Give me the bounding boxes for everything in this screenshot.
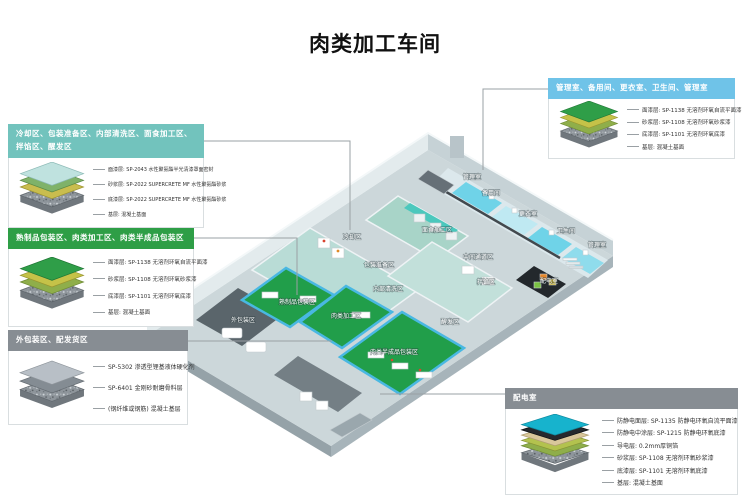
spec-line: 砂浆层: SP-2022 SUPERCRETE MF 水性聚氨酯砂浆 (108, 181, 226, 188)
spec-line: 面漆层: SP-1138 无溶剂环氧自流平面漆 (642, 106, 742, 114)
spec-line: 基层: 混凝土基面 (617, 478, 663, 487)
spec-line: SP-6401 金刚砂耐磨骨料层 (108, 383, 183, 392)
truck (222, 328, 242, 338)
spec-line: 防静电中涂层: SP-1215 防静电环氧底漆 (617, 428, 726, 437)
callout-meat-zones: 熟制品包装区、肉类加工区、肉类半成品包装区 面漆层: SP-1138 无溶剂环氧… (8, 228, 194, 327)
room-label: 冷却区 (343, 233, 361, 241)
leader-dash (602, 432, 614, 433)
spec-line: 基层: 混凝土基面 (108, 211, 146, 218)
floor-system-diagram (512, 414, 598, 488)
spec-line: 基层: 混凝土基面 (108, 308, 150, 316)
spec-line: 面漆层: SP-2043 水性聚氨酯半光清漆罩面密封 (108, 166, 213, 173)
leader-dash (602, 445, 614, 446)
room-label: 内部清洗区 (373, 285, 403, 293)
leader-dash (602, 420, 614, 421)
rooftop-vent (450, 136, 464, 158)
leader-dash (93, 278, 105, 279)
floor-system-diagram (15, 359, 89, 415)
spec-line: 底漆层: SP-1101 无溶剂环氧底漆 (108, 292, 191, 300)
leader-dash (93, 184, 105, 185)
truck (246, 342, 266, 352)
spec-line: 底漆层: SP-1101 无溶剂环氧底漆 (617, 466, 708, 475)
floor-system-diagram (15, 257, 89, 317)
page: 肉类加工车间 (0, 0, 750, 500)
leader-dash (93, 366, 105, 367)
spec-line: 防静电面层: SP-1135 防静电环氧自流平面漆 (617, 416, 738, 425)
leader-dash (93, 408, 105, 409)
room-label: 管理室 (463, 173, 481, 181)
room-label: 外包装区 (231, 316, 255, 324)
spec-line: 基层: 混凝土基面 (642, 143, 684, 151)
leader-dash (627, 146, 639, 147)
room-label: 中间通道区 (463, 253, 493, 261)
callout-header: 冷却区、包装准备区、内部清洗区、面食加工区、拌馅区、醒发区 (8, 124, 204, 158)
leader-dash (627, 109, 639, 110)
room-label: 肉类半成品包装区 (370, 348, 418, 356)
leader-dash (627, 122, 639, 123)
callout-cooling-zones: 冷却区、包装准备区、内部清洗区、面食加工区、拌馅区、醒发区 面漆层: SP-20… (8, 124, 204, 228)
callout-management-rooms: 管理室、备用间、更衣室、卫生间、管理室 面漆层: SP-1138 无溶剂环氧自流… (548, 78, 735, 159)
spec-line: 底漆层: SP-1101 无溶剂环氧底漆 (642, 130, 725, 138)
floor-system-diagram (15, 162, 89, 222)
leader-dash (93, 214, 105, 215)
room-label: 卫生间 (557, 227, 575, 235)
callout-power-room: 配电室 防静电面层: SP-1135 防静电环氧自流平面漆 防静电中涂层: SP… (505, 388, 738, 495)
room-label: 配电室 (540, 277, 558, 285)
room-label: 拌馅区 (477, 278, 495, 286)
callout-header: 配电室 (505, 388, 738, 409)
leader-dash (627, 134, 639, 135)
spec-line: SP-5302 渗透型锂基液体硬化剂 (108, 362, 195, 371)
floor-system-diagram (555, 101, 623, 155)
spec-line: (钢纤维或钢筋) 混凝土基层 (108, 404, 181, 413)
leader-dash (93, 387, 105, 388)
room-label: 面食加工区 (422, 226, 452, 234)
room-label: 备用间 (482, 189, 500, 197)
leader-dash (93, 169, 105, 170)
callout-dispatch-zones: 外包装区、配发货区 SP-5302 渗透型锂基液体硬化剂 SP-6401 金刚砂… (8, 330, 188, 425)
spec-line: 面漆层: SP-1138 无溶剂环氧自流平面漆 (108, 258, 208, 266)
leader-dash (602, 457, 614, 458)
room-label: 肉类加工区 (331, 312, 361, 320)
spec-line: 导电层: 0.2mm厚铜箔 (617, 441, 678, 450)
room-label: 熟制品包装区 (279, 298, 315, 306)
leader-dash (93, 295, 105, 296)
spec-line: 砂浆层: SP-1108 无溶剂环氧砂浆漆 (642, 118, 731, 126)
leader-dash (93, 262, 105, 263)
spec-line: 砂浆层: SP-1108 无溶剂环氧砂浆漆 (108, 275, 197, 283)
callout-header: 管理室、备用间、更衣室、卫生间、管理室 (548, 78, 735, 99)
spec-line: 砂浆层: SP-1108 无溶剂环氧砂浆漆 (617, 453, 714, 462)
spec-line: 底漆层: SP-2022 SUPERCRETE MF 水性聚氨酯砂浆 (108, 196, 226, 203)
room-label: 醒发区 (441, 318, 459, 326)
leader-dash (602, 470, 614, 471)
room-label: 管理室 (588, 241, 606, 249)
leader-dash (93, 199, 105, 200)
leader-dash (602, 482, 614, 483)
callout-header: 熟制品包装区、肉类加工区、肉类半成品包装区 (8, 228, 194, 249)
callout-header: 外包装区、配发货区 (8, 330, 188, 351)
leader-dash (93, 312, 105, 313)
room-label: 包装准备区 (364, 261, 394, 269)
room-label: 更衣室 (519, 210, 537, 218)
